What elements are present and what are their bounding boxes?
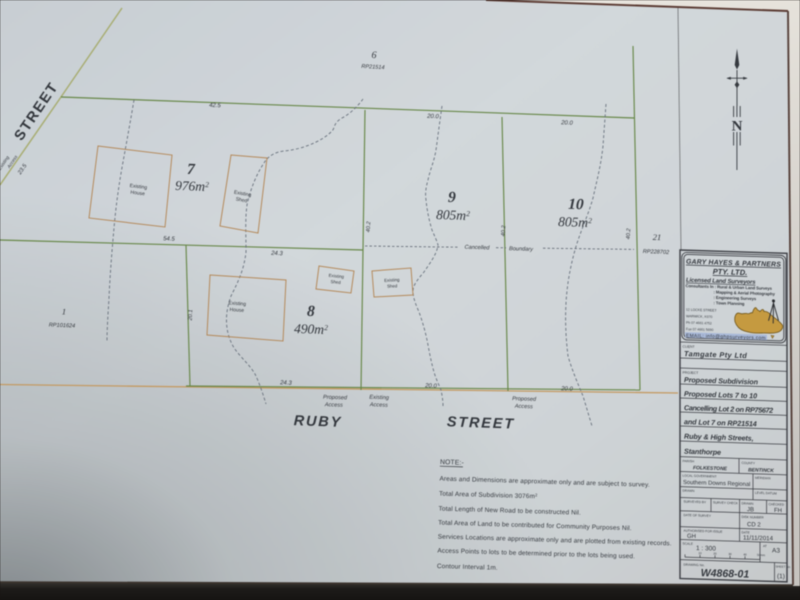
svg-text:DRAWN: DRAWN (742, 501, 755, 505)
svg-text:BENTINCK: BENTINCK (748, 467, 774, 474)
svg-text:Proposed: Proposed (323, 395, 348, 402)
svg-text:SHEET No.: SHEET No. (776, 565, 792, 569)
svg-text:21: 21 (653, 232, 662, 242)
svg-text:805m2: 805m2 (558, 214, 593, 230)
svg-text:24.3: 24.3 (270, 251, 284, 257)
svg-text:10: 10 (568, 196, 584, 214)
svg-text:PARISH: PARISH (683, 459, 695, 463)
svg-text:W4868-01: W4868-01 (701, 567, 750, 581)
svg-text:50mm: 50mm (757, 553, 766, 557)
svg-text:Stanthorpe: Stanthorpe (684, 447, 721, 457)
svg-text:Existing: Existing (369, 395, 390, 402)
svg-text:Access: Access (514, 404, 533, 411)
svg-text:PTY. LTD.: PTY. LTD. (713, 267, 748, 277)
svg-text:20.0: 20.0 (424, 383, 438, 389)
svg-text:490m2: 490m2 (294, 321, 329, 337)
svg-text:SURVEYED BY: SURVEYED BY (684, 500, 707, 505)
svg-text:8: 8 (307, 303, 316, 320)
svg-text:AT: AT (763, 544, 767, 548)
svg-text:30: 30 (728, 552, 732, 556)
svg-text:GH: GH (687, 534, 696, 540)
svg-text:20.0: 20.0 (560, 386, 574, 392)
svg-text:DRAWN: DRAWN (683, 489, 696, 493)
svg-text:STREET: STREET (447, 414, 516, 432)
svg-text:9: 9 (448, 189, 457, 206)
svg-text:Proposed: Proposed (512, 396, 537, 403)
svg-text:20.1: 20.1 (188, 309, 194, 321)
svg-text:LEVEL DATUM: LEVEL DATUM (755, 491, 777, 496)
svg-text:20.0: 20.0 (426, 114, 440, 120)
svg-text:DISK NUMBER: DISK NUMBER (742, 515, 765, 520)
svg-text:Cancelled: Cancelled (464, 245, 490, 252)
svg-text:SURVEY CHECK: SURVEY CHECK (713, 501, 739, 506)
svg-text:Boundary: Boundary (509, 246, 534, 253)
svg-text:NOTE:-: NOTE:- (440, 459, 464, 467)
svg-text:COUNTY: COUNTY (742, 461, 756, 465)
svg-text:A3: A3 (772, 547, 780, 554)
svg-text:Access: Access (369, 402, 388, 409)
svg-text:WARWICK, K070: WARWICK, K070 (686, 314, 712, 319)
svg-text:JB: JB (747, 507, 754, 513)
svg-text:40: 40 (743, 552, 747, 556)
svg-text:FH: FH (774, 508, 782, 514)
svg-text:1: 1 (62, 306, 67, 316)
svg-text:Ph 07 4661 4752: Ph 07 4661 4752 (686, 321, 712, 326)
svg-text:RP21514: RP21514 (361, 64, 385, 71)
svg-text:20.0: 20.0 (560, 120, 574, 126)
svg-text:40.2: 40.2 (501, 224, 508, 236)
svg-text:RUBY: RUBY (294, 413, 343, 431)
svg-text:40.2: 40.2 (626, 227, 633, 239)
svg-text:: Town Planning: : Town Planning (714, 300, 745, 306)
svg-text:24.3: 24.3 (279, 380, 293, 386)
svg-text:House: House (229, 307, 244, 314)
svg-text:MERIDIAN: MERIDIAN (755, 476, 771, 481)
svg-text:RP101624: RP101624 (49, 323, 76, 330)
svg-text:Existing: Existing (384, 277, 400, 283)
svg-text:FOLKESTONE: FOLKESTONE (693, 465, 728, 472)
svg-text:20: 20 (713, 552, 717, 556)
svg-text:CHECKED: CHECKED (769, 502, 785, 507)
svg-text:6: 6 (371, 50, 377, 61)
svg-text:RP228702: RP228702 (643, 249, 671, 256)
svg-text:976m2: 976m2 (175, 178, 210, 194)
svg-text:805m2: 805m2 (436, 207, 471, 223)
svg-text:CD 2: CD 2 (747, 522, 761, 528)
svg-text:Access: Access (324, 402, 343, 409)
svg-text:(1): (1) (777, 573, 785, 580)
svg-text:N: N (732, 119, 743, 135)
svg-text:Shed: Shed (387, 283, 398, 289)
svg-text:54.5: 54.5 (163, 236, 176, 242)
svg-text:10: 10 (698, 551, 702, 555)
svg-text:40.2: 40.2 (366, 220, 373, 232)
svg-text:42.5: 42.5 (209, 103, 222, 109)
svg-text:SCALE: SCALE (683, 542, 693, 546)
svg-text:11/11/2014: 11/11/2014 (743, 534, 774, 542)
